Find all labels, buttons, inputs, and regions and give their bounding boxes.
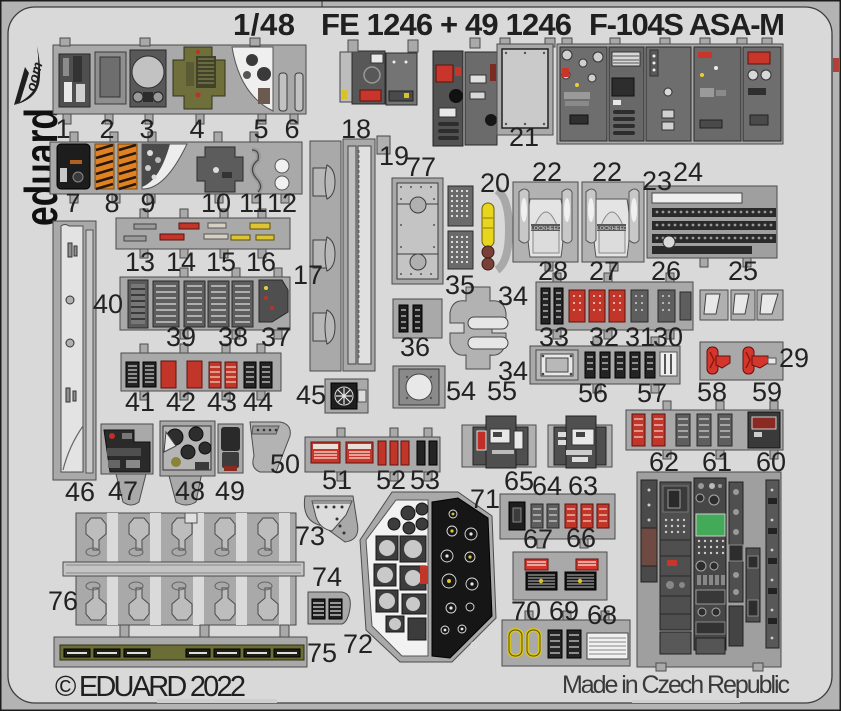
svg-text:40: 40 xyxy=(93,289,123,319)
svg-text:54: 54 xyxy=(446,376,476,406)
svg-text:LOCKHEED: LOCKHEED xyxy=(531,226,561,232)
svg-text:48: 48 xyxy=(175,476,205,506)
svg-text:42: 42 xyxy=(166,387,196,417)
svg-text:18: 18 xyxy=(341,114,371,144)
svg-text:6: 6 xyxy=(284,114,299,144)
svg-text:32: 32 xyxy=(589,322,619,352)
svg-text:3: 3 xyxy=(139,114,154,144)
svg-text:26: 26 xyxy=(651,256,681,286)
svg-text:49: 49 xyxy=(215,476,245,506)
svg-text:5: 5 xyxy=(253,114,268,144)
svg-text:44: 44 xyxy=(243,387,273,417)
svg-text:37: 37 xyxy=(261,322,291,352)
svg-text:70: 70 xyxy=(511,596,541,626)
svg-text:45: 45 xyxy=(296,380,326,410)
svg-text:67: 67 xyxy=(523,524,553,554)
svg-text:19: 19 xyxy=(379,141,409,171)
svg-text:39: 39 xyxy=(166,322,196,352)
svg-text:2: 2 xyxy=(99,114,114,144)
svg-text:47: 47 xyxy=(108,476,138,506)
svg-text:1/48: 1/48 xyxy=(233,7,295,42)
svg-text:35: 35 xyxy=(445,270,475,300)
svg-text:58: 58 xyxy=(697,377,727,407)
svg-text:62: 62 xyxy=(649,447,679,477)
svg-text:71: 71 xyxy=(470,484,500,514)
svg-text:51: 51 xyxy=(322,465,352,495)
svg-text:63: 63 xyxy=(568,471,598,501)
svg-text:21: 21 xyxy=(509,122,539,152)
svg-text:10: 10 xyxy=(201,188,231,218)
svg-text:38: 38 xyxy=(218,322,248,352)
svg-text:57: 57 xyxy=(637,378,667,408)
svg-text:20: 20 xyxy=(480,168,510,198)
svg-text:14: 14 xyxy=(166,247,196,277)
svg-text:22: 22 xyxy=(592,157,622,187)
svg-text:73: 73 xyxy=(295,521,325,551)
svg-text:© EDUARD 2022: © EDUARD 2022 xyxy=(55,671,246,703)
svg-text:24: 24 xyxy=(673,157,703,187)
svg-text:65: 65 xyxy=(504,466,534,496)
svg-text:72: 72 xyxy=(343,629,373,659)
svg-text:Made in Czech Republic: Made in Czech Republic xyxy=(562,671,790,699)
svg-text:7: 7 xyxy=(65,188,80,218)
svg-text:FE 1246 + 49 1246: FE 1246 + 49 1246 xyxy=(321,7,572,42)
svg-text:59: 59 xyxy=(752,377,782,407)
svg-text:27: 27 xyxy=(589,256,619,286)
svg-text:23: 23 xyxy=(642,166,672,196)
svg-text:LOCKHEED: LOCKHEED xyxy=(597,226,627,232)
svg-text:55: 55 xyxy=(487,376,517,406)
svg-text:46: 46 xyxy=(65,477,95,507)
svg-text:41: 41 xyxy=(125,387,155,417)
svg-text:66: 66 xyxy=(566,523,596,553)
svg-text:76: 76 xyxy=(48,586,78,616)
svg-text:16: 16 xyxy=(246,247,276,277)
svg-text:28: 28 xyxy=(538,256,568,286)
svg-text:53: 53 xyxy=(410,465,440,495)
svg-text:25: 25 xyxy=(728,256,758,286)
svg-text:52: 52 xyxy=(376,465,406,495)
svg-text:13: 13 xyxy=(125,247,155,277)
svg-text:12: 12 xyxy=(267,188,297,218)
svg-text:34: 34 xyxy=(498,281,528,311)
svg-text:33: 33 xyxy=(539,322,569,352)
svg-text:30: 30 xyxy=(653,322,683,352)
svg-text:15: 15 xyxy=(206,247,236,277)
svg-text:74: 74 xyxy=(312,562,342,592)
svg-text:75: 75 xyxy=(307,638,337,668)
svg-text:29: 29 xyxy=(779,343,809,373)
svg-text:8: 8 xyxy=(104,188,119,218)
svg-text:77: 77 xyxy=(406,152,436,182)
svg-text:4: 4 xyxy=(189,114,204,144)
svg-text:17: 17 xyxy=(293,260,323,290)
svg-text:60: 60 xyxy=(756,447,786,477)
svg-text:56: 56 xyxy=(578,378,608,408)
svg-text:43: 43 xyxy=(207,387,237,417)
svg-text:11: 11 xyxy=(239,188,267,218)
svg-text:36: 36 xyxy=(400,332,430,362)
svg-text:64: 64 xyxy=(532,471,562,501)
svg-text:69: 69 xyxy=(549,596,579,626)
svg-text:61: 61 xyxy=(702,447,732,477)
svg-text:22: 22 xyxy=(532,157,562,187)
svg-text:68: 68 xyxy=(587,600,617,630)
svg-text:F-104S ASA-M: F-104S ASA-M xyxy=(589,7,785,42)
svg-text:50: 50 xyxy=(270,449,300,479)
svg-text:9: 9 xyxy=(140,188,155,218)
svg-text:31: 31 xyxy=(625,322,655,352)
svg-text:1: 1 xyxy=(55,114,70,144)
